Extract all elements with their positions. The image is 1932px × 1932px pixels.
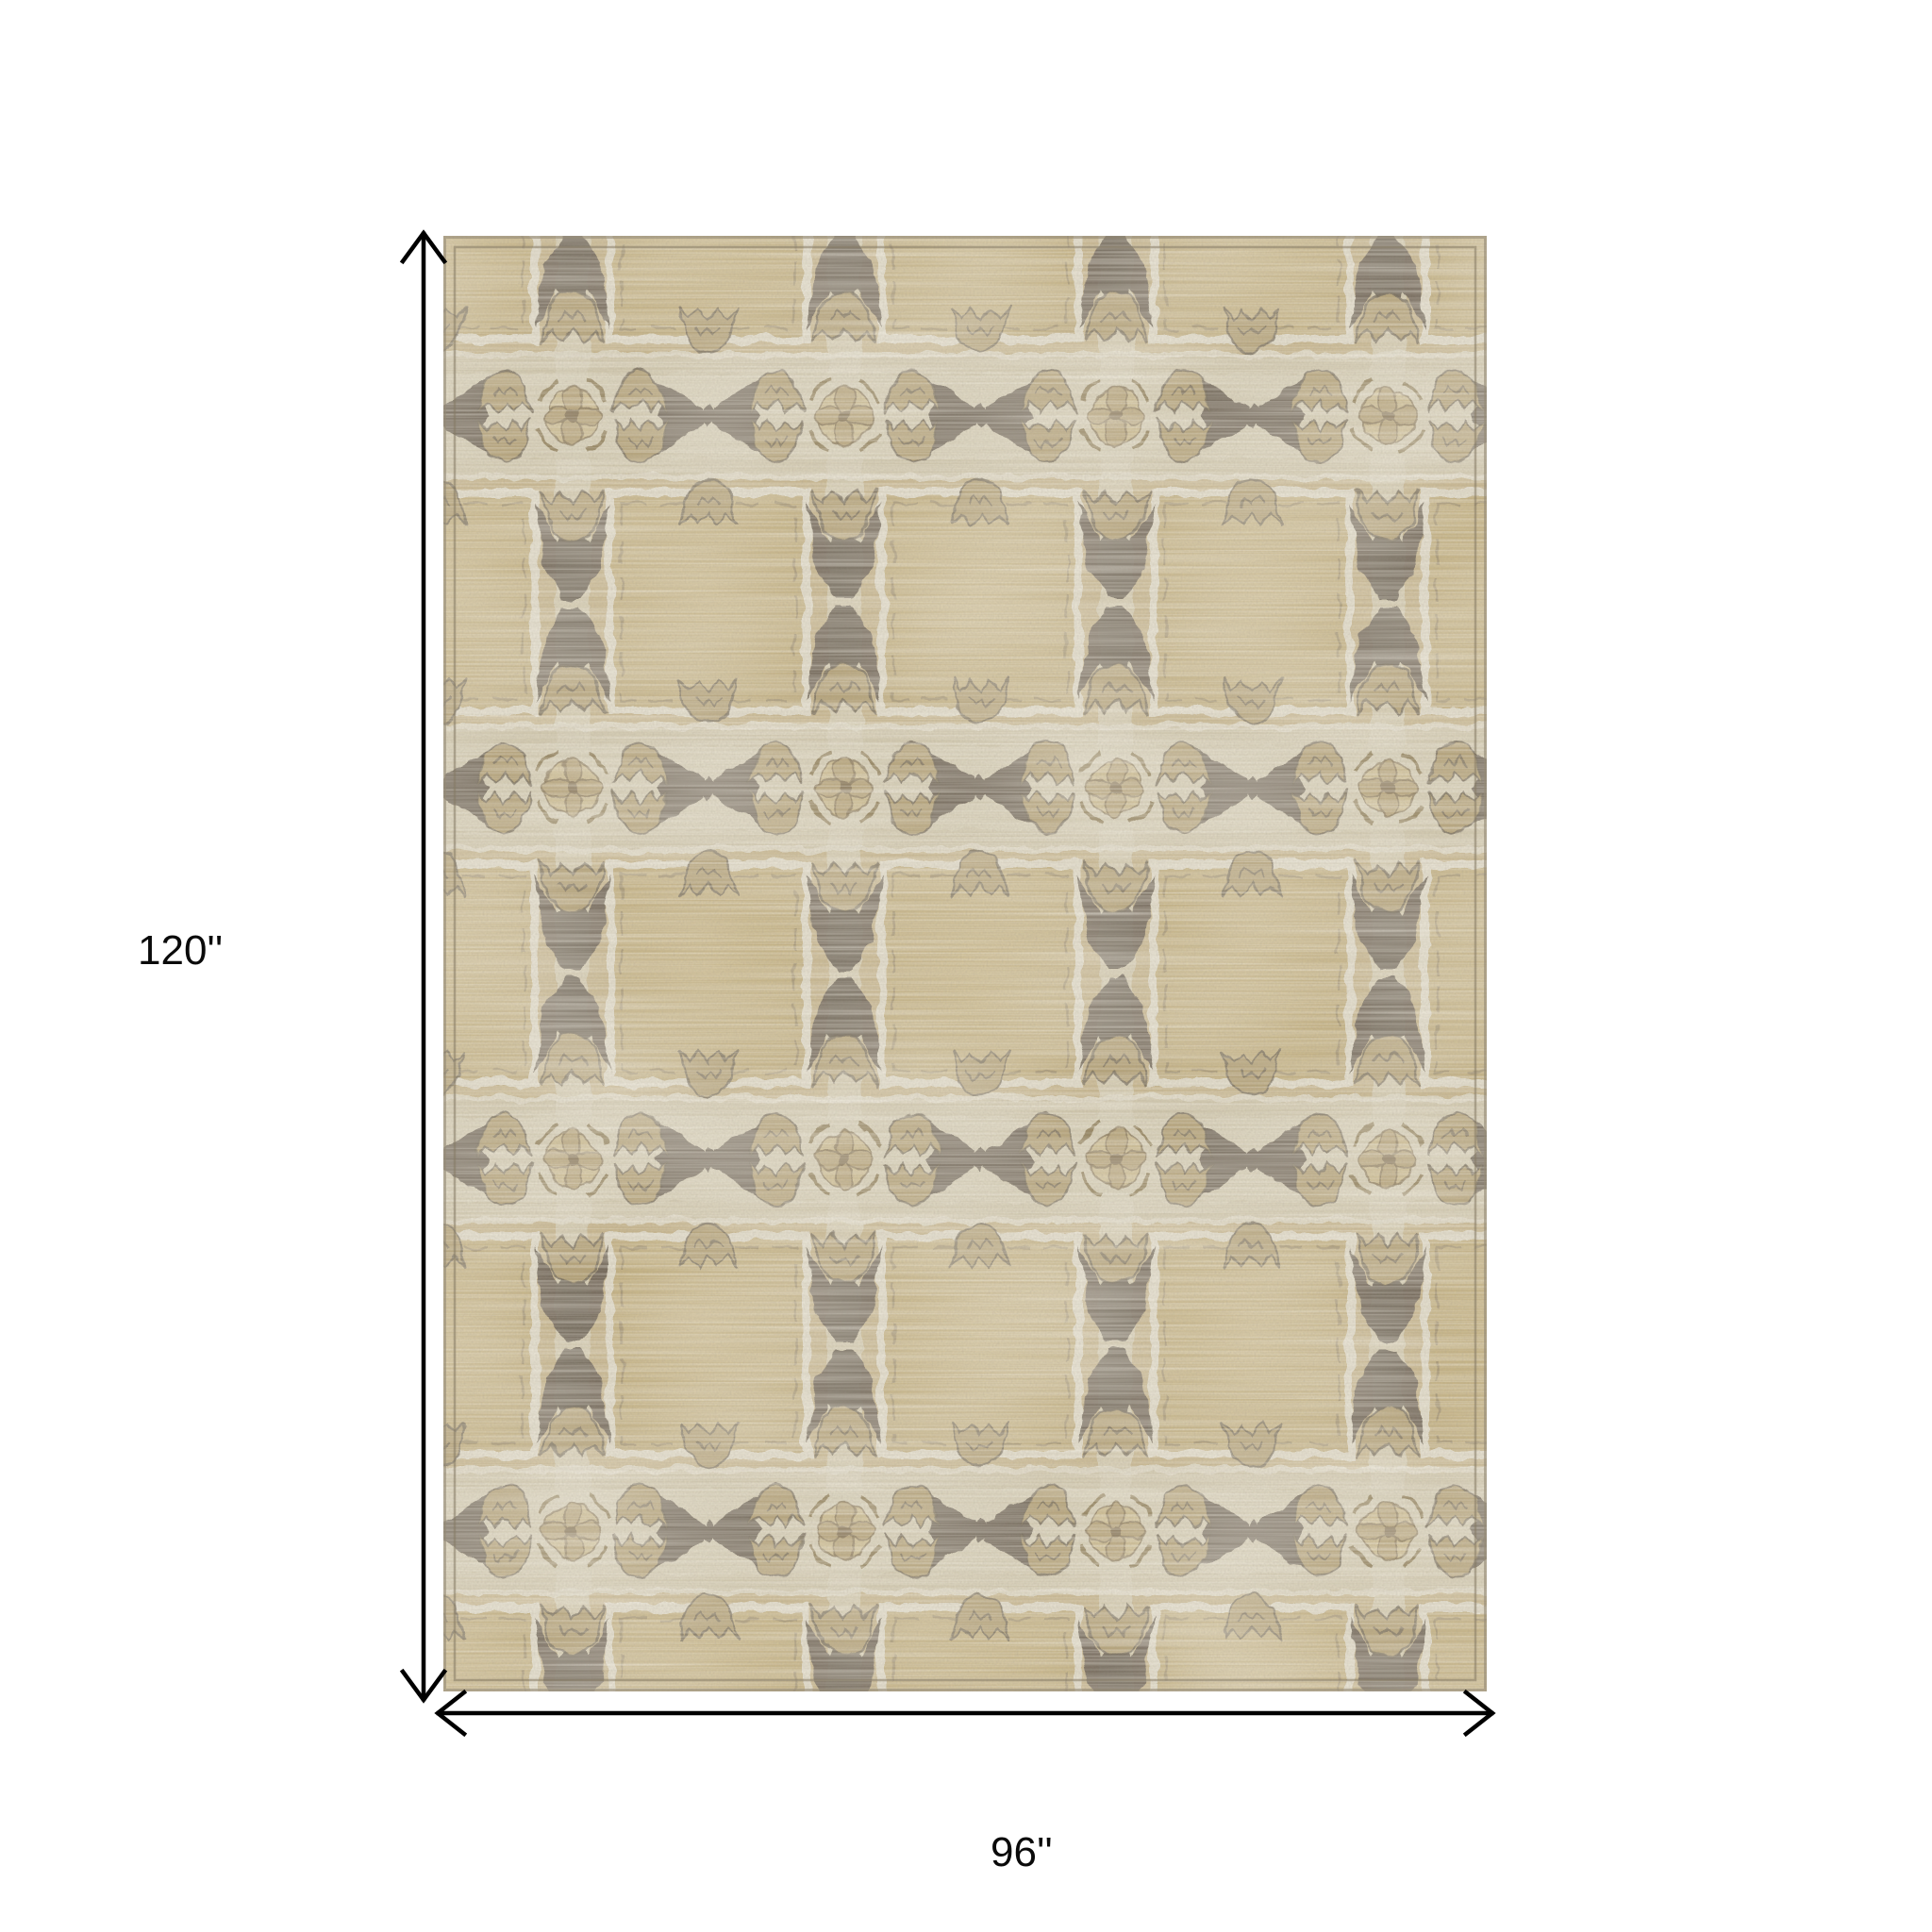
width-dimension-label: 96''	[991, 1832, 1053, 1874]
height-dimension-label: 120''	[138, 930, 223, 972]
diagram-canvas: 120'' 96''	[0, 0, 1932, 1932]
rug-fabric	[443, 236, 1487, 1691]
width-dimension-arrow	[438, 1692, 1492, 1734]
height-dimension-arrow	[403, 233, 444, 1700]
rug-product-image	[443, 236, 1487, 1691]
